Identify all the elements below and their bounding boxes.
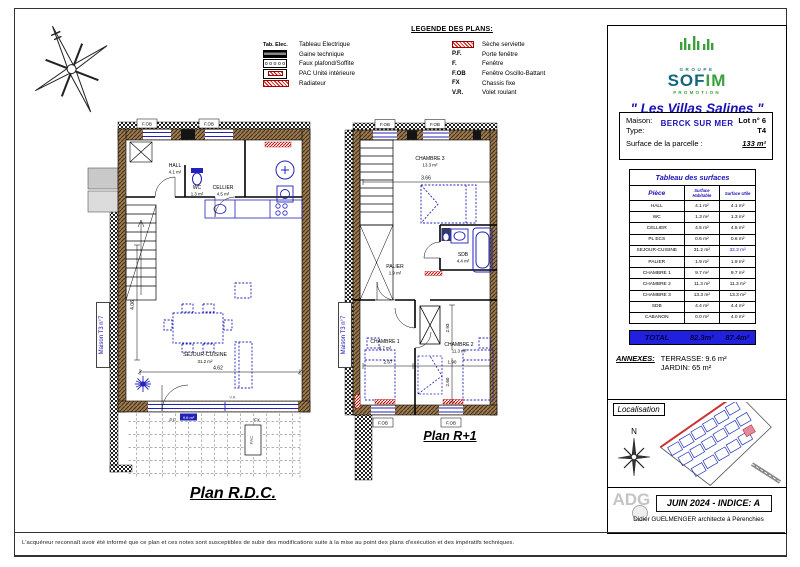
annexes-block: ANNEXES: TERRASSE: 9.6 m² JARDIN: 65 m² <box>616 354 778 372</box>
rdc-terrace-tag: 9.6 m² <box>180 414 197 421</box>
legend-item: Tab. Elec. Tableau Electrique <box>263 40 355 50</box>
room-label-chambre1: CHAMBRE 1 <box>370 339 399 345</box>
room-label-sejour: SEJOUR-CUISINE <box>183 352 227 358</box>
r1-staircase <box>360 140 393 300</box>
annexes-label: ANNEXES: <box>616 354 655 372</box>
r1-desk <box>418 356 442 394</box>
north-letter: N <box>631 427 637 436</box>
room-area-cellier: 4.5 m² <box>217 192 230 197</box>
fenetre-code: F. <box>452 61 482 67</box>
site-boundary <box>656 402 781 486</box>
rdc-meter-box <box>88 191 118 212</box>
fob-label: F.OB <box>204 122 214 127</box>
fob-label: F.OB <box>142 122 152 127</box>
parcelle-surface: 133 m² <box>742 139 766 149</box>
localisation-section: Localisation N <box>607 399 786 488</box>
svg-text:9.6 m²: 9.6 m² <box>183 415 195 420</box>
porte-fenetre-code: P.F. <box>452 51 482 57</box>
r1-toilet <box>442 228 451 241</box>
legend-item: F. Fenêtre <box>452 59 545 69</box>
legend-item: Gaine technique <box>263 50 355 60</box>
table-row: CHAMBRE 313.3 m²13.3 m² <box>630 290 756 301</box>
r1-dim-260: 2.60 <box>445 377 450 386</box>
col-header-utile: Surface Utile <box>720 186 756 201</box>
volet-roulant-code: V.R. <box>452 90 482 96</box>
room-label-hall: HALL <box>169 163 182 169</box>
sofim-logo-text: SOFIM <box>608 71 786 91</box>
surfaces-total-row: TOTAL 82.3m² 87.4m² <box>629 330 756 345</box>
total-habitable: 82.3m² <box>684 333 719 342</box>
r1-dim-267: 2.67 <box>384 360 393 365</box>
fenetre-ob-code: F.OB <box>452 71 482 77</box>
r1-bathtub <box>473 228 492 272</box>
tableau-electrique-symbol: Tab. Elec. <box>263 42 299 48</box>
room-area-sdb: 4.4 m² <box>457 259 470 264</box>
table-row: CELLIER4.5 m²4.5 m² <box>630 223 756 234</box>
rdc-toilet <box>191 168 203 185</box>
room-area-hall: 4.1 m² <box>169 170 182 175</box>
table-row: CABANON0.0 m²4.0 m² <box>630 312 756 323</box>
table-row: CHAMBRE 19.7 m²9.7 m² <box>630 268 756 279</box>
lot-info-type: Type: T4 <box>626 126 766 136</box>
legend-item: Faux plafond/Soffite <box>263 59 355 69</box>
room-label-chambre2: CHAMBRE 2 <box>444 342 473 348</box>
faux-plafond-symbol <box>263 59 287 68</box>
plan-sheet: LEGENDE DES PLANS: Tab. Elec. Tableau El… <box>0 0 800 567</box>
localisation-compass: N <box>616 424 652 480</box>
rdc-sofa <box>235 342 252 388</box>
surfaces-table-title: Tableau des surfaces <box>630 170 756 186</box>
r1-lower-insulation-band <box>355 415 372 480</box>
legend-left-column: Tab. Elec. Tableau Electrique Gaine tech… <box>263 40 355 88</box>
room-label-palier: PALIER <box>386 264 404 270</box>
fob-label: F.OB <box>446 421 456 426</box>
room-area-palier: 1.9 m² <box>389 271 402 276</box>
room-area-chambre1: 9.7 m² <box>379 346 392 351</box>
rdc-kitchen-counter <box>205 200 302 218</box>
table-row: PL ECS0.6 m²0.6 m² <box>630 234 756 245</box>
legend-item: V.R. Volet roulant <box>452 88 545 98</box>
legend-item: Radiateur <box>263 78 355 88</box>
localisation-site-map <box>652 402 784 486</box>
rdc-left-insulation-band <box>110 210 118 472</box>
legend-item: P.F. Porte fenêtre <box>452 50 545 60</box>
table-row: CHAMBRE 211.3 m²11.3 m² <box>630 279 756 290</box>
table-row: HALL4.1 m²4.1 m² <box>630 201 756 212</box>
r1-seche-serviette <box>425 272 442 276</box>
seche-serviette-symbol <box>452 41 474 48</box>
disclaimer-text: L'acquéreur reconnaît avoir été informé … <box>22 540 514 546</box>
rdc-neighbor-label: Maison T3 n°7 <box>96 302 110 368</box>
rdc-pac-unit: PAC <box>245 425 261 455</box>
rdc-door-swings <box>155 177 235 411</box>
rdc-meter-box <box>88 168 118 189</box>
rdc-fridge <box>235 283 251 298</box>
rdc-dim-height: 4.06 <box>130 300 136 310</box>
table-row: SDB4.4 m²4.4 m² <box>630 301 756 312</box>
sofim-promotion-text: PROMOTION <box>608 90 786 95</box>
table-row: WC1.3 m²1.3 m² <box>630 212 756 223</box>
room-label-wc: WC <box>193 185 202 191</box>
lot-info-box: Maison: Lot n° 6 Type: T4 Surface de la … <box>619 112 773 160</box>
room-label-chambre3: CHAMBRE 3 <box>415 156 444 162</box>
fob-label: F.OB <box>430 122 440 127</box>
chassis-fixe-code: FX <box>452 80 482 86</box>
legend-item: FX Chassis fixe <box>452 78 545 88</box>
total-utile: 87.4m² <box>720 333 755 342</box>
fob-label: F.OB <box>378 421 388 426</box>
rdc-ecs-tank <box>276 161 294 179</box>
r1-dim-190: 1.90 <box>448 360 457 365</box>
title-block-panel: GROUPE SOFIM PROMOTION " Les Villas Sali… <box>607 25 787 534</box>
annexes-jardin: JARDIN: 65 m² <box>661 363 727 372</box>
date-indice: JUIN 2024 - INDICE: A <box>656 495 772 512</box>
vr-label: V.R. <box>401 135 408 139</box>
room-area-chambre2: 11.3 m² <box>452 349 467 354</box>
plan-r1-title: Plan R+1 <box>390 429 510 443</box>
r1-gaine-technique <box>473 131 481 140</box>
legend-item: PAC Unité intérieure <box>263 69 355 79</box>
r1-door-swings <box>377 242 440 348</box>
r1-gaine-technique <box>407 131 417 140</box>
room-area-wc: 1.3 m² <box>191 192 204 197</box>
legend-item: Sèche serviette <box>452 40 545 50</box>
lot-info-maison: Maison: Lot n° 6 <box>626 116 766 126</box>
lot-type: T4 <box>757 126 766 136</box>
room-area-sejour: 31.2 m² <box>198 359 213 364</box>
room-label-sdb: SDB <box>458 252 469 258</box>
architect-name: Didier GUELMENGER architecte à Pérenchie… <box>620 516 778 523</box>
plan-rdc-title: Plan R.D.C. <box>148 485 318 503</box>
r1-bed-chambre3 <box>421 185 476 223</box>
r1-dim-366: 3.66 <box>421 176 431 182</box>
pac-unite-symbol <box>263 69 287 79</box>
legend-right-column: Sèche serviette P.F. Porte fenêtre F. Fe… <box>452 40 545 98</box>
room-area-chambre3: 13.3 m² <box>423 163 438 168</box>
r1-dim-293: 2.93 <box>445 323 450 332</box>
annexes-terrasse: TERRASSE: 9.6 m² <box>661 354 727 363</box>
rdc-dim-width: 4.62 <box>213 366 223 372</box>
titleblock-section: ADG JUIN 2024 - INDICE: A Didier GUELMEN… <box>607 487 786 534</box>
r1-partitions <box>353 225 497 415</box>
rdc-closet <box>130 142 152 162</box>
lot-number: Lot n° 6 <box>738 116 766 126</box>
r1-neighbor-label: Maison T3 n°7 <box>338 302 352 368</box>
rdc-radiator <box>265 142 291 147</box>
rdc-room-labels: HALL 4.1 m² WC 1.3 m² CELLIER 4.5 m² SEJ… <box>169 163 234 364</box>
col-header-piece: Pièce <box>630 186 685 201</box>
svg-text:PAC: PAC <box>249 435 254 445</box>
legend-title: LEGENDE DES PLANS: <box>372 26 532 33</box>
r1-radiator <box>375 400 395 405</box>
sofim-bars-icon <box>678 34 716 50</box>
plan-rdc-drawing: F.OB F.OB P.F. FX V.R. <box>85 110 325 515</box>
col-header-habitable: Surface Habitable <box>684 186 720 201</box>
r1-radiator <box>355 395 360 408</box>
rdc-staircase <box>126 205 156 300</box>
lot-info-parcelle: Surface de la parcelle : 133 m² <box>626 139 766 149</box>
rdc-gaine-technique <box>181 130 195 140</box>
total-label: TOTAL <box>630 333 684 342</box>
legend-item: F.OB Fenêtre Oscillo-Battant <box>452 69 545 79</box>
disclaimer-strip: L'acquéreur reconnaît avoir été informé … <box>14 532 785 555</box>
room-label-cellier: CELLIER <box>213 185 234 191</box>
compass-rose <box>26 18 118 118</box>
gaine-technique-symbol <box>263 50 287 58</box>
r1-washbasin <box>451 229 468 243</box>
surfaces-table: Tableau des surfaces Pièce Surface Habit… <box>629 169 756 324</box>
rdc-dining-table <box>164 304 232 352</box>
vr-label: V.R. <box>229 396 236 400</box>
rdc-terrace-grid <box>128 412 300 478</box>
table-row: PALIER1.9 m²1.9 m² <box>630 256 756 267</box>
table-row: SEJOUR-CUISINE31.2 m²32.3 m² <box>630 245 756 256</box>
fob-label: F.OB <box>380 122 390 127</box>
radiateur-symbol <box>263 80 289 87</box>
